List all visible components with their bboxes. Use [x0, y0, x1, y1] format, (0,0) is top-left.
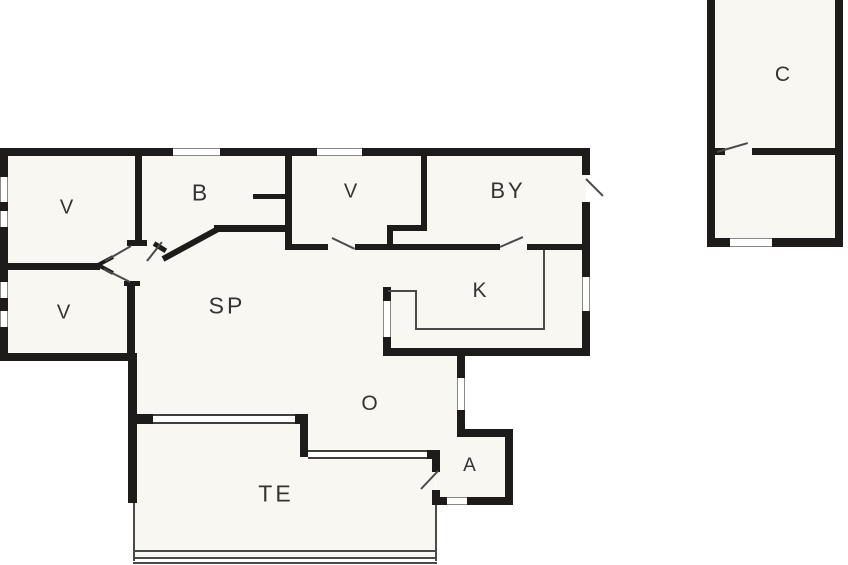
window-o-right: [457, 378, 465, 410]
counter-k-bottom: [415, 328, 545, 330]
wall-a-west-lower: [432, 490, 440, 505]
window-left-3: [0, 282, 8, 298]
floor-fill-c-building: [711, 0, 839, 243]
room-label-te: TE: [258, 481, 293, 508]
sliding-door-te-2: [308, 450, 427, 459]
wall-right-upper: [582, 148, 590, 175]
room-label-k: K: [472, 279, 489, 303]
sliding-door-te-1: [153, 414, 295, 424]
wall-c-left: [707, 0, 715, 247]
wall-lower-left: [128, 358, 137, 503]
room-label-b: B: [192, 180, 210, 207]
terrace-edge-bottom-2: [133, 557, 437, 559]
wall-bottom-right-block: [383, 348, 590, 356]
wall-by-left: [421, 148, 427, 230]
window-left-1: [0, 177, 8, 202]
counter-k-left: [415, 290, 417, 330]
window-c-bottom: [730, 238, 772, 247]
room-label-c: C: [775, 63, 793, 87]
window-top-b: [173, 148, 220, 156]
wall-c-divider-right: [752, 148, 843, 155]
door-swing-by-entrance: [585, 178, 603, 196]
window-k-left: [383, 301, 391, 337]
wall-b-right: [285, 148, 292, 250]
window-a-south: [447, 497, 467, 505]
floor-plan-canvas: V B V BY V SP K O A TE C: [0, 0, 848, 565]
room-label-v-upper-left: V: [60, 197, 76, 220]
room-label-by: BY: [490, 178, 525, 204]
window-top-v-middle: [317, 148, 362, 156]
wall-top: [0, 148, 590, 156]
wall-c-bottom: [707, 238, 843, 247]
terrace-edge-bottom-3: [133, 562, 437, 564]
wall-bottom-left-block: [0, 353, 137, 361]
window-left-4: [0, 311, 8, 327]
wall-by-k-right: [527, 244, 583, 250]
room-label-v-lower-left: V: [57, 302, 73, 325]
room-label-o: O: [361, 392, 380, 416]
terrace-edge-left: [133, 503, 135, 561]
wall-te-step-vertical: [300, 414, 308, 457]
room-label-a: A: [463, 455, 479, 477]
window-left-2: [0, 211, 8, 227]
wall-v-middle-bottom-left: [285, 244, 328, 250]
wall-a-west-upper: [432, 450, 440, 472]
wall-a-east: [505, 429, 513, 505]
terrace-edge-bottom-1: [133, 550, 437, 552]
terrace-edge-right: [435, 505, 437, 561]
wall-v-divider: [7, 263, 100, 270]
slider1-jamb-left: [137, 414, 153, 424]
wall-b-closet-stub: [253, 194, 287, 199]
room-label-v-middle: V: [344, 181, 360, 204]
room-label-sp: SP: [209, 293, 246, 320]
counter-k-right: [543, 250, 545, 330]
wall-by-k-left: [393, 244, 500, 250]
counter-k-top: [388, 290, 417, 292]
wall-v-lower-right: [127, 283, 135, 361]
wall-c-right: [835, 0, 843, 247]
window-right-by-k: [582, 277, 590, 311]
wall-b-left: [135, 148, 142, 245]
wall-b-bottom: [214, 225, 289, 232]
